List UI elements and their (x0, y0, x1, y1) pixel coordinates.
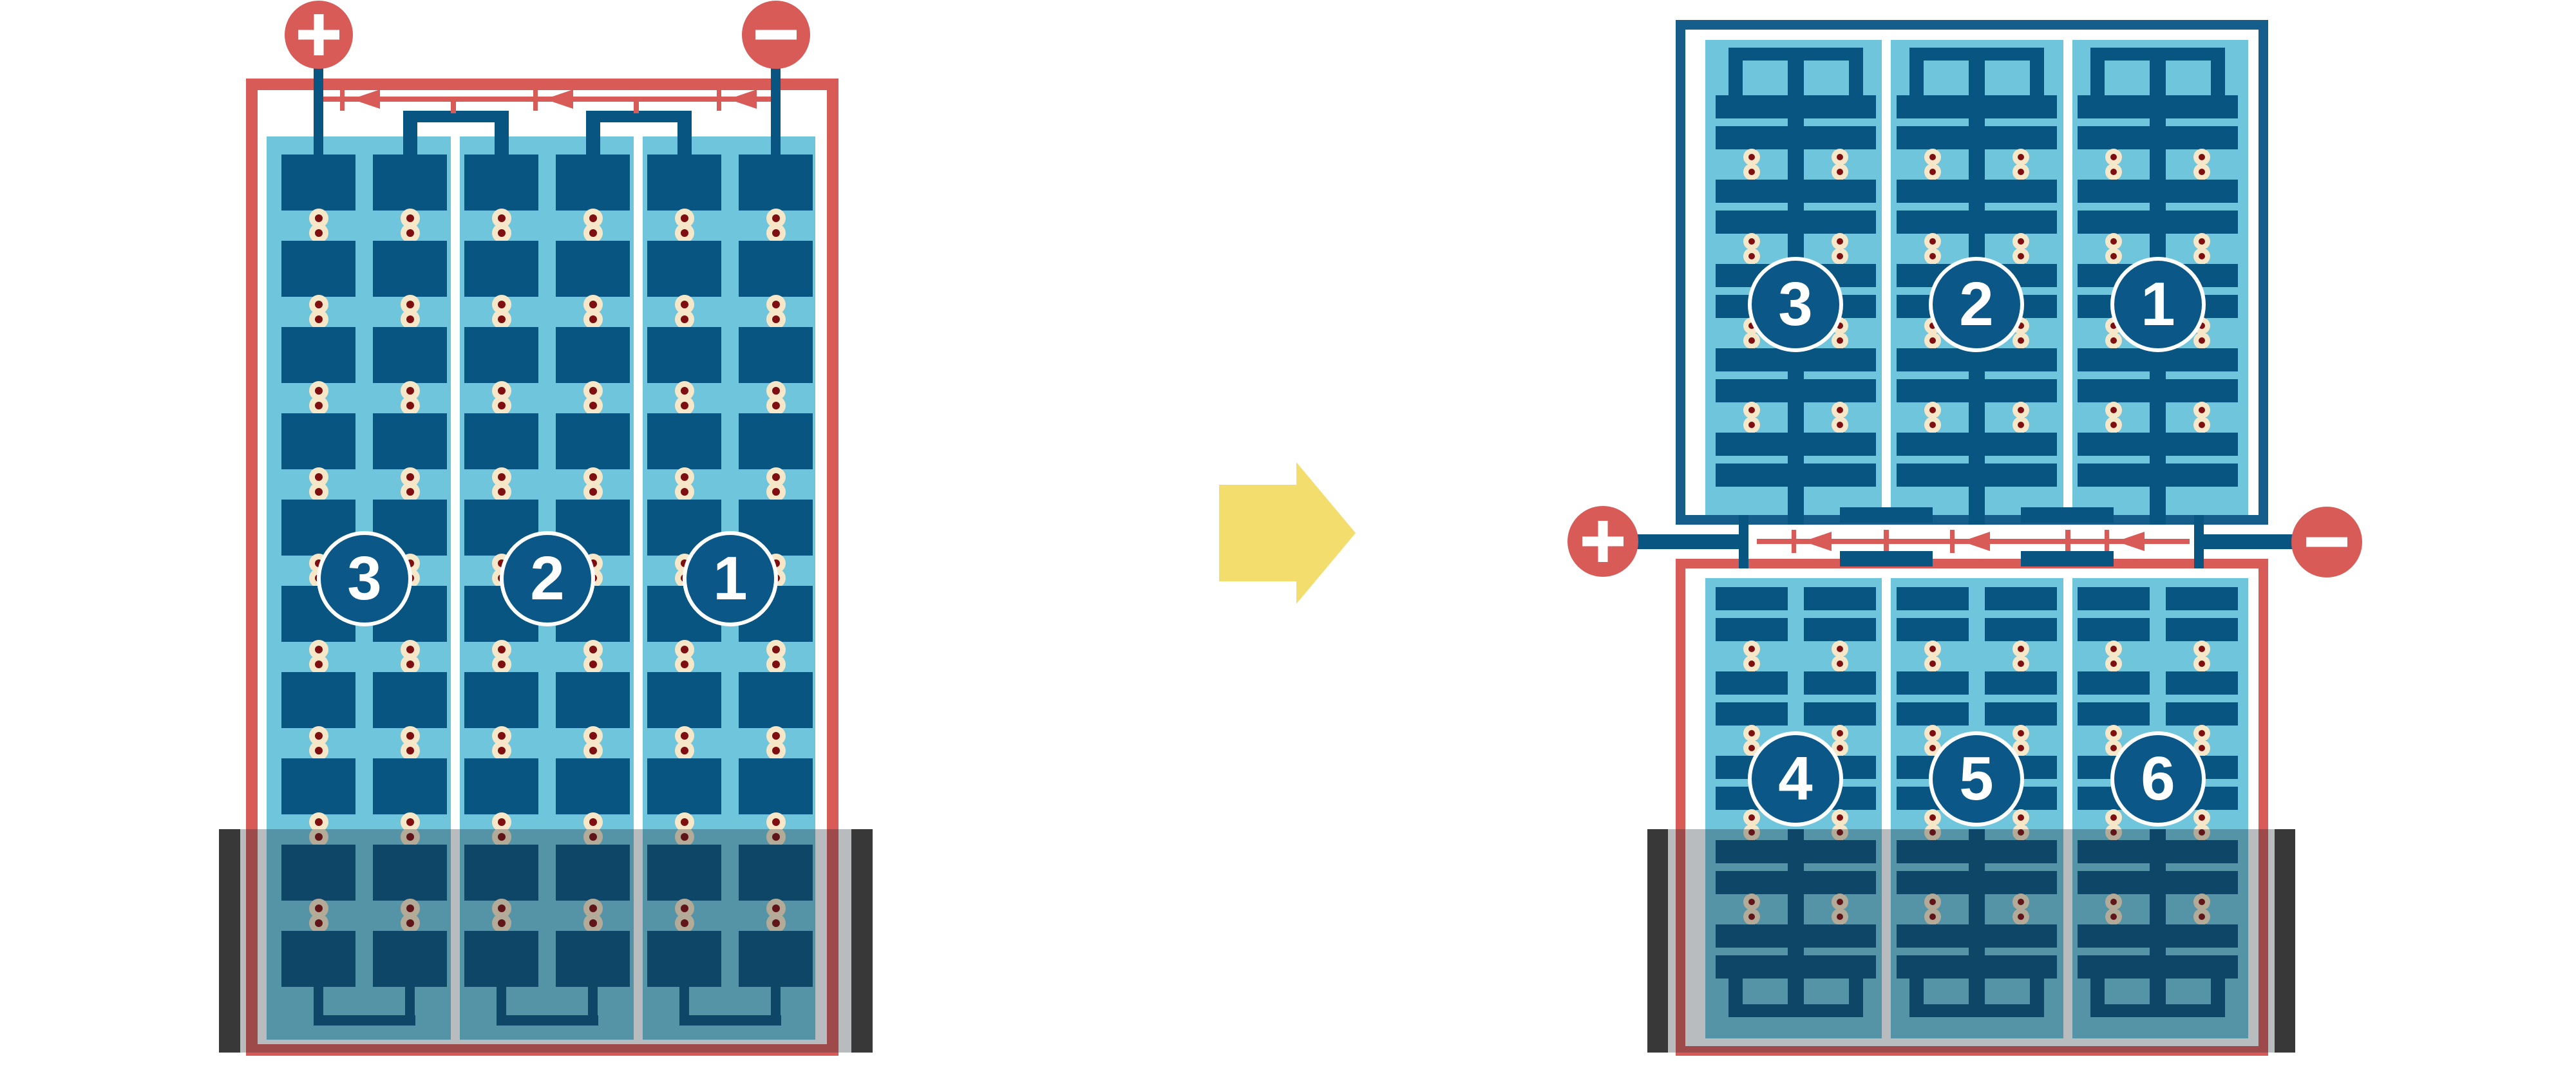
solder-dot-core (1837, 253, 1843, 259)
string-top-bridge-leg (2030, 61, 2044, 95)
solder-dot-core (589, 818, 597, 826)
half-cell-bar (1716, 211, 1788, 234)
half-cell-bar (1804, 433, 1876, 456)
solder-dot-core (1837, 745, 1843, 751)
right_module.top_half-frame (1676, 20, 2268, 30)
half-cell-bar (1985, 211, 2057, 234)
wiring-diagram-canvas: 321321456 (0, 0, 2576, 1068)
pv-cell (373, 931, 447, 987)
solder-dot-core (315, 488, 323, 496)
half-cell-bar (1804, 840, 1876, 863)
string-top-bridge-leg (586, 122, 600, 155)
half-cell-bar (1716, 924, 1788, 948)
series-link-tab (2021, 551, 2114, 567)
solder-dot-core (498, 660, 506, 668)
solder-dot-core (589, 488, 597, 496)
solder-dot-core (1748, 253, 1755, 259)
solder-dot-core (2110, 913, 2117, 920)
solder-dot-core (406, 488, 414, 496)
string-top-bridge-leg (1909, 61, 1924, 95)
pv-cell (556, 758, 630, 814)
pv-cell (556, 241, 630, 297)
pv-cell (739, 758, 813, 814)
transform-arrow-body (1219, 485, 1296, 581)
pv-cell (739, 845, 813, 901)
solder-dot-core (1929, 238, 1936, 245)
terminal-bus-bar (2201, 534, 2296, 549)
half-cell-bar (1985, 618, 2057, 641)
solder-dot-core (1837, 337, 1843, 344)
solder-dot-core (1748, 422, 1755, 428)
pv-cell (464, 758, 538, 814)
string-top-bridge-leg (495, 122, 509, 155)
pv-cell (647, 155, 721, 211)
half-cell-bar (2166, 433, 2238, 456)
string-bottom-bridge-leg (2211, 979, 2225, 1006)
solder-dot-core (2199, 745, 2205, 751)
half-cell-bar (1804, 464, 1876, 487)
pv-cell (373, 758, 447, 814)
solder-dot-core (681, 833, 688, 841)
half-cell-bar (2166, 671, 2238, 695)
pv-cell (281, 845, 355, 901)
pv-cell (556, 155, 630, 211)
solder-dot-core (315, 646, 323, 653)
solder-dot-core (1929, 337, 1936, 344)
solder-dot-core (498, 315, 506, 323)
string-top-bridge-bar (2090, 48, 2225, 61)
bypass-diode-cathode-bar (717, 88, 721, 111)
pv-cell (373, 155, 447, 211)
solder-dot-core (1748, 646, 1755, 652)
solder-dot-core (406, 660, 414, 668)
solder-dot-core (2199, 899, 2205, 905)
half-cell-bar (1897, 955, 1969, 979)
string-separator (1882, 578, 1891, 1038)
solder-dot-core (589, 229, 597, 237)
solder-dot-core (772, 818, 780, 826)
solder-dot-core (315, 660, 323, 668)
solder-dot-core (589, 214, 597, 222)
pv-cell (739, 241, 813, 297)
solder-dot-core (406, 473, 414, 481)
solder-dot-core (1837, 407, 1843, 413)
solder-dot-core (2110, 154, 2117, 160)
solder-dot-core (772, 747, 780, 754)
solder-dot-core (772, 833, 780, 841)
right_module.bottom_half-frame (1676, 559, 1685, 1056)
half-cell-bar (1804, 95, 1876, 118)
solder-dot-core (589, 402, 597, 409)
string-number-badge: 6 (2110, 731, 2206, 827)
pv-cell (556, 931, 630, 987)
solder-dot-core (2110, 238, 2117, 245)
pv-cell (647, 413, 721, 469)
string-bottom-bridge-leg (1728, 979, 1743, 1006)
plus-terminal (285, 1, 353, 69)
minus-terminal (2291, 507, 2362, 577)
diode-tap-tick (2065, 530, 2070, 553)
solder-dot-core (315, 732, 323, 740)
solder-dot-core (2018, 169, 2024, 175)
pv-cell (373, 672, 447, 728)
solder-dot-core (1929, 253, 1936, 259)
pv-cell (281, 672, 355, 728)
solder-dot-core (1837, 913, 1843, 920)
half-cell-bar (1985, 924, 2057, 948)
solder-dot-core (2110, 745, 2117, 751)
half-cell-bar (2078, 840, 2150, 863)
solder-dot-core (681, 301, 688, 308)
pv-cell (373, 413, 447, 469)
solder-dot-core (772, 387, 780, 395)
solder-dot-core (2110, 660, 2117, 667)
shade-end-cap (2275, 829, 2295, 1053)
solder-dot-core (681, 747, 688, 754)
solder-dot-core (681, 660, 688, 668)
solder-dot-core (1837, 730, 1843, 736)
pv-cell (556, 413, 630, 469)
solder-dot-core (772, 488, 780, 496)
half-cell-bar (1897, 379, 1969, 402)
solder-dot-core (315, 402, 323, 409)
pv-cell (739, 931, 813, 987)
pv-cell (739, 672, 813, 728)
solder-dot-core (1837, 899, 1843, 905)
pv-cell (556, 672, 630, 728)
string-number-badge: 2 (1929, 257, 2024, 352)
string-center-strip (2150, 829, 2166, 1006)
half-cell-bar (1985, 433, 2057, 456)
half-cell-bar (2078, 433, 2150, 456)
half-cell-bar (1716, 379, 1788, 402)
half-cell-bar (1985, 348, 2057, 371)
half-cell-bar (2078, 871, 2150, 894)
shade-end-cap (219, 829, 240, 1053)
half-cell-bar (2166, 348, 2238, 371)
half-cell-bar (1716, 348, 1788, 371)
solder-dot-core (2018, 814, 2024, 821)
string-bottom-bridge-bar (497, 1015, 598, 1026)
half-cell-bar (2166, 924, 2238, 948)
solder-dot-core (315, 473, 323, 481)
half-cell-bar (2166, 840, 2238, 863)
string-top-bridge-leg (403, 122, 417, 155)
solder-dot-core (2018, 660, 2024, 667)
right_module.bottom_half-frame (2259, 559, 2268, 1056)
solder-dot-core (772, 315, 780, 323)
solder-dot-core (498, 818, 506, 826)
half-cell-bar (1804, 379, 1876, 402)
half-cell-bar (1716, 126, 1788, 149)
solder-dot-core (589, 904, 597, 912)
solder-dot-core (681, 818, 688, 826)
solder-dot-core (681, 214, 688, 222)
solder-dot-core (772, 919, 780, 927)
half-cell-bar (1804, 618, 1876, 641)
half-cell-bar (1985, 464, 2057, 487)
solder-dot-core (2199, 422, 2205, 428)
solder-dot-core (1837, 660, 1843, 667)
string-number-badge: 5 (1929, 731, 2024, 827)
pv-cell (647, 845, 721, 901)
string-top-bridge-bar (1909, 48, 2044, 61)
string-separator (2063, 578, 2072, 1038)
solder-dot-core (315, 229, 323, 237)
solder-dot-core (2199, 169, 2205, 175)
minus-icon (2306, 538, 2347, 547)
solder-dot-core (2199, 829, 2205, 836)
half-cell-bar (2166, 955, 2238, 979)
pv-cell (281, 155, 355, 211)
half-cell-bar (1716, 702, 1788, 726)
solder-dot-core (498, 473, 506, 481)
half-cell-bar (1804, 871, 1876, 894)
solder-dot-core (2110, 337, 2117, 344)
string-separator (1882, 40, 1891, 515)
solder-dot-core (315, 387, 323, 395)
half-cell-bar (1716, 180, 1788, 203)
solder-dot-core (681, 402, 688, 409)
solder-dot-core (2018, 646, 2024, 652)
solder-dot-core (1748, 829, 1755, 836)
solder-dot-core (406, 833, 414, 841)
plus-icon-vertical-bar (314, 14, 324, 55)
half-cell-bar (2078, 379, 2150, 402)
half-cell-bar (1985, 871, 2057, 894)
solder-dot-core (498, 747, 506, 754)
half-cell-bar (2078, 955, 2150, 979)
string-bottom-bridge-bar (679, 1015, 781, 1026)
solder-dot-core (2110, 899, 2117, 905)
string-top-bridge-leg (1728, 61, 1743, 95)
solder-dot-core (498, 229, 506, 237)
pv-cell (373, 327, 447, 383)
solder-dot-core (2110, 169, 2117, 175)
pv-cell (556, 845, 630, 901)
solder-dot-core (2199, 660, 2205, 667)
solder-dot-core (681, 904, 688, 912)
half-cell-bar (1804, 348, 1876, 371)
half-cell-bar (1804, 180, 1876, 203)
solder-dot-core (2199, 730, 2205, 736)
solder-dot-core (2018, 745, 2024, 751)
solder-dot-core (315, 833, 323, 841)
left-module-frame (246, 79, 258, 1056)
solder-dot-core (2110, 422, 2117, 428)
solder-dot-core (1929, 899, 1936, 905)
right_module.bottom_half-frame (1676, 1046, 2268, 1056)
solder-dot-core (589, 387, 597, 395)
solder-dot-core (589, 646, 597, 653)
solder-dot-core (772, 402, 780, 409)
solder-dot-core (1929, 154, 1936, 160)
half-cell-bar (2078, 587, 2150, 610)
solder-dot-core (681, 732, 688, 740)
solder-dot-core (589, 732, 597, 740)
half-cell-bar (2078, 671, 2150, 695)
series-link-tab (2021, 507, 2114, 523)
terminal-bus-bar (1636, 534, 1742, 549)
pv-cell (739, 327, 813, 383)
half-cell-bar (2166, 379, 2238, 402)
solder-dot-core (2018, 238, 2024, 245)
solder-dot-core (772, 214, 780, 222)
solder-dot-core (406, 214, 414, 222)
half-cell-bar (2166, 180, 2238, 203)
bypass-diode-cathode-bar (2105, 530, 2109, 553)
pv-cell (464, 413, 538, 469)
string-number-badge: 1 (683, 531, 778, 626)
half-cell-bar (2166, 587, 2238, 610)
pv-cell (739, 413, 813, 469)
solder-dot-core (498, 919, 506, 927)
solder-dot-core (1748, 899, 1755, 905)
solder-dot-core (406, 818, 414, 826)
minus-terminal (742, 1, 810, 69)
solder-dot-core (1837, 646, 1843, 652)
half-cell-bar (1716, 955, 1788, 979)
solder-dot-core (406, 301, 414, 308)
solder-dot-core (1929, 646, 1936, 652)
half-cell-bar (1897, 618, 1969, 641)
pv-cell (647, 327, 721, 383)
solder-dot-core (1837, 814, 1843, 821)
solder-dot-core (772, 660, 780, 668)
solder-dot-core (1837, 422, 1843, 428)
solder-dot-core (1748, 913, 1755, 920)
half-cell-bar (2078, 211, 2150, 234)
half-cell-bar (1804, 587, 1876, 610)
solder-dot-core (589, 473, 597, 481)
solder-dot-core (2199, 407, 2205, 413)
solder-dot-core (1837, 829, 1843, 836)
half-cell-bar (1716, 840, 1788, 863)
solder-dot-core (406, 747, 414, 754)
solder-dot-core (498, 301, 506, 308)
solder-dot-core (2110, 253, 2117, 259)
solder-dot-core (681, 315, 688, 323)
solder-dot-core (2199, 337, 2205, 344)
solder-dot-core (2199, 913, 2205, 920)
solder-dot-core (406, 402, 414, 409)
string-separator (634, 136, 643, 1040)
string-bottom-bridge-bar (314, 1015, 415, 1026)
string-bottom-bridge-leg (1909, 979, 1924, 1006)
half-cell-bar (1897, 348, 1969, 371)
half-cell-bar (1897, 211, 1969, 234)
half-cell-bar (2166, 211, 2238, 234)
solder-dot-core (681, 387, 688, 395)
pv-cell (464, 327, 538, 383)
half-cell-bar (2166, 464, 2238, 487)
half-cell-bar (1985, 702, 2057, 726)
solder-dot-core (2199, 646, 2205, 652)
pv-cell (739, 155, 813, 211)
diode-tap-stub (634, 99, 639, 113)
bypass-diode-cathode-bar (1950, 530, 1955, 553)
solder-dot-core (2110, 407, 2117, 413)
bypass-diode-triangle-icon (1962, 532, 1990, 551)
string-top-bridge-leg (677, 122, 692, 155)
string-number-badge: 1 (2110, 257, 2206, 352)
solder-dot-core (498, 904, 506, 912)
solder-dot-core (2110, 829, 2117, 836)
bypass-diode-triangle-icon (1803, 532, 1832, 551)
solder-dot-core (1837, 154, 1843, 160)
shade-end-cap (851, 829, 873, 1053)
solder-dot-core (406, 229, 414, 237)
right_module.top_half-frame (1676, 20, 1685, 525)
solder-dot-core (1748, 407, 1755, 413)
solder-dot-core (315, 301, 323, 308)
half-cell-bar (1804, 702, 1876, 726)
solder-dot-core (1748, 238, 1755, 245)
half-cell-bar (2078, 618, 2150, 641)
string-separator (451, 136, 460, 1040)
solder-dot-core (1748, 745, 1755, 751)
half-cell-bar (1716, 95, 1788, 118)
half-cell-bar (1985, 955, 2057, 979)
right_module.top_half-frame (2259, 20, 2268, 525)
pv-cell (464, 845, 538, 901)
solder-dot-core (498, 646, 506, 653)
left-module-frame (246, 79, 838, 90)
half-cell-bar (1985, 180, 2057, 203)
half-cell-bar (1897, 840, 1969, 863)
solder-dot-core (498, 833, 506, 841)
pv-cell (373, 241, 447, 297)
pv-cell (556, 327, 630, 383)
string-top-bridge-bar (1728, 48, 1863, 61)
half-cell-bar (2078, 348, 2150, 371)
solder-dot-core (1929, 829, 1936, 836)
string-bottom-bridge-leg (1849, 979, 1863, 1006)
string-number-badge: 4 (1748, 731, 1843, 827)
solder-dot-core (772, 646, 780, 653)
string-bottom-bridge-bar (1728, 1004, 1863, 1017)
solder-dot-core (2110, 730, 2117, 736)
solder-dot-core (2018, 407, 2024, 413)
solder-dot-core (2018, 730, 2024, 736)
string-number-badge: 3 (1748, 257, 1843, 352)
terminal-post (771, 63, 781, 155)
half-cell-bar (2166, 95, 2238, 118)
bypass-diode-cathode-bar (1792, 530, 1796, 553)
solder-dot-core (1929, 814, 1936, 821)
minus-icon (755, 30, 797, 40)
plus-icon-vertical-bar (1598, 521, 1608, 562)
half-cell-bar (1716, 871, 1788, 894)
pv-cell (464, 931, 538, 987)
half-cell-bar (1716, 671, 1788, 695)
solder-dot-core (315, 315, 323, 323)
half-cell-bar (1897, 464, 1969, 487)
solder-dot-core (1929, 745, 1936, 751)
pv-cell (647, 758, 721, 814)
bypass-diode-triangle-icon (352, 89, 380, 109)
solder-dot-core (2018, 154, 2024, 160)
solder-dot-core (1748, 169, 1755, 175)
solder-dot-core (589, 315, 597, 323)
solder-dot-core (1748, 814, 1755, 821)
half-cell-bar (1985, 95, 2057, 118)
half-cell-bar (2166, 702, 2238, 726)
solder-dot-core (1929, 913, 1936, 920)
half-cell-bar (1985, 671, 2057, 695)
solder-dot-core (315, 919, 323, 927)
half-cell-bar (1897, 671, 1969, 695)
